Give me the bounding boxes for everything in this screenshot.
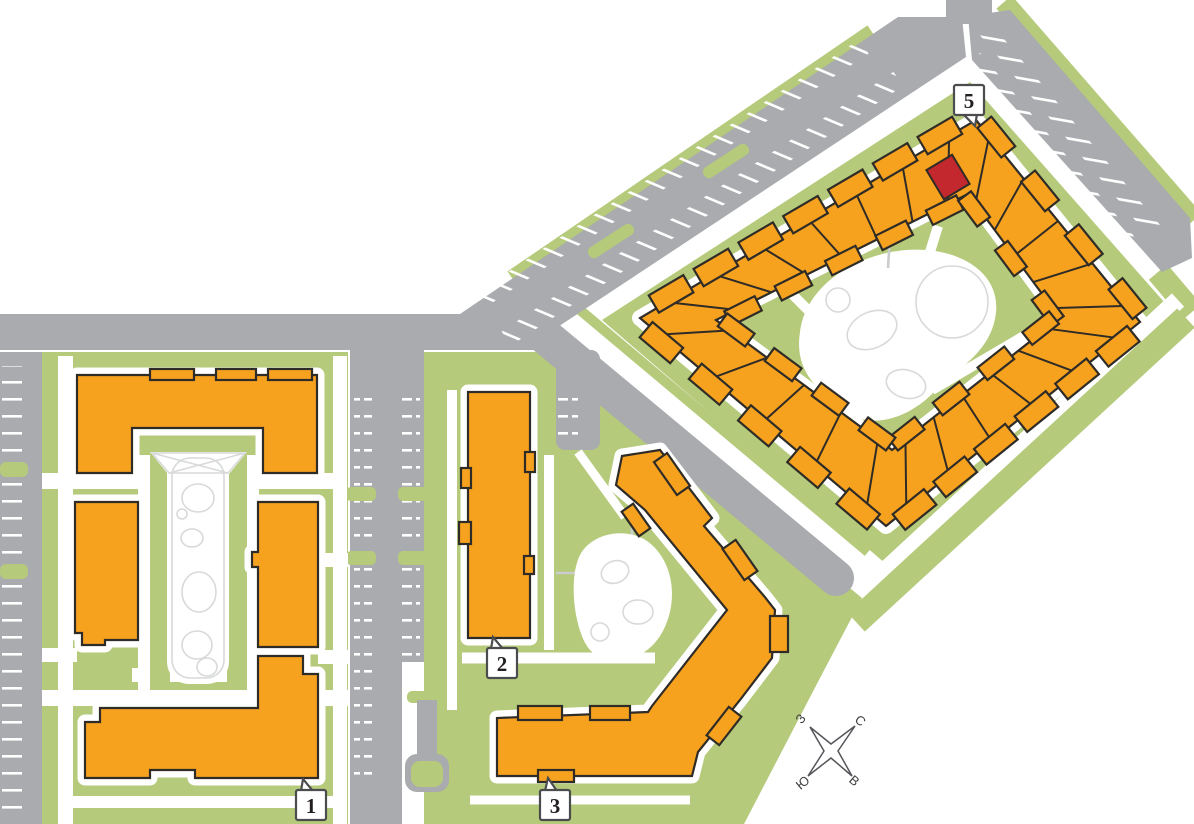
left-parking-ticks — [2, 366, 26, 810]
masterplan-map: 1 2 3 5 С В Ю З — [0, 0, 1194, 824]
masterplan-stage: 1 2 3 5 С В Ю З — [0, 0, 1194, 824]
building-1-label-text: 1 — [306, 794, 317, 818]
building-2-notch — [461, 468, 471, 488]
walkway — [58, 796, 333, 808]
building-5-section-divider — [905, 439, 906, 509]
left-lane-green-tab-1 — [0, 462, 28, 477]
building-2-notch — [525, 452, 535, 472]
building-2-notch — [459, 522, 471, 544]
building-3-label-text: 3 — [550, 794, 561, 818]
walkway — [333, 356, 347, 824]
building-2-notch — [524, 556, 534, 574]
building-1-notch — [216, 369, 256, 380]
road-green-tab-4 — [398, 551, 428, 565]
building-1-notch — [268, 369, 312, 380]
building-2-label-text: 2 — [497, 652, 508, 676]
building-5-label-text: 5 — [964, 89, 975, 113]
turnaround-bulb-green — [411, 761, 443, 787]
central-road-ticks-lower — [354, 666, 372, 780]
stub-road-ticks — [558, 398, 578, 444]
turnaround-stem — [417, 700, 437, 758]
building-1-notch — [150, 369, 194, 380]
building-3-notch — [538, 770, 574, 782]
building-3-notch — [590, 706, 630, 720]
courtyard-green-strip — [227, 452, 247, 688]
road-green-tab-1 — [346, 487, 376, 501]
road-green-tab-2 — [398, 487, 428, 501]
walkway — [42, 648, 77, 662]
road-green-tab-3 — [346, 551, 376, 565]
building-1-left-wing[interactable] — [75, 502, 138, 645]
building-2-shape[interactable] — [468, 392, 530, 638]
central-road-ticks-right — [402, 390, 420, 658]
building-3-notch — [518, 706, 562, 720]
central-road-ticks-left — [354, 390, 372, 658]
playground-area-1 — [167, 452, 229, 684]
north-road-stub — [946, 0, 992, 24]
building-3-notch — [770, 616, 788, 652]
building-1-right-wing[interactable] — [252, 502, 318, 647]
left-lane-green-tab-2 — [0, 564, 28, 579]
building-2[interactable] — [459, 392, 535, 638]
